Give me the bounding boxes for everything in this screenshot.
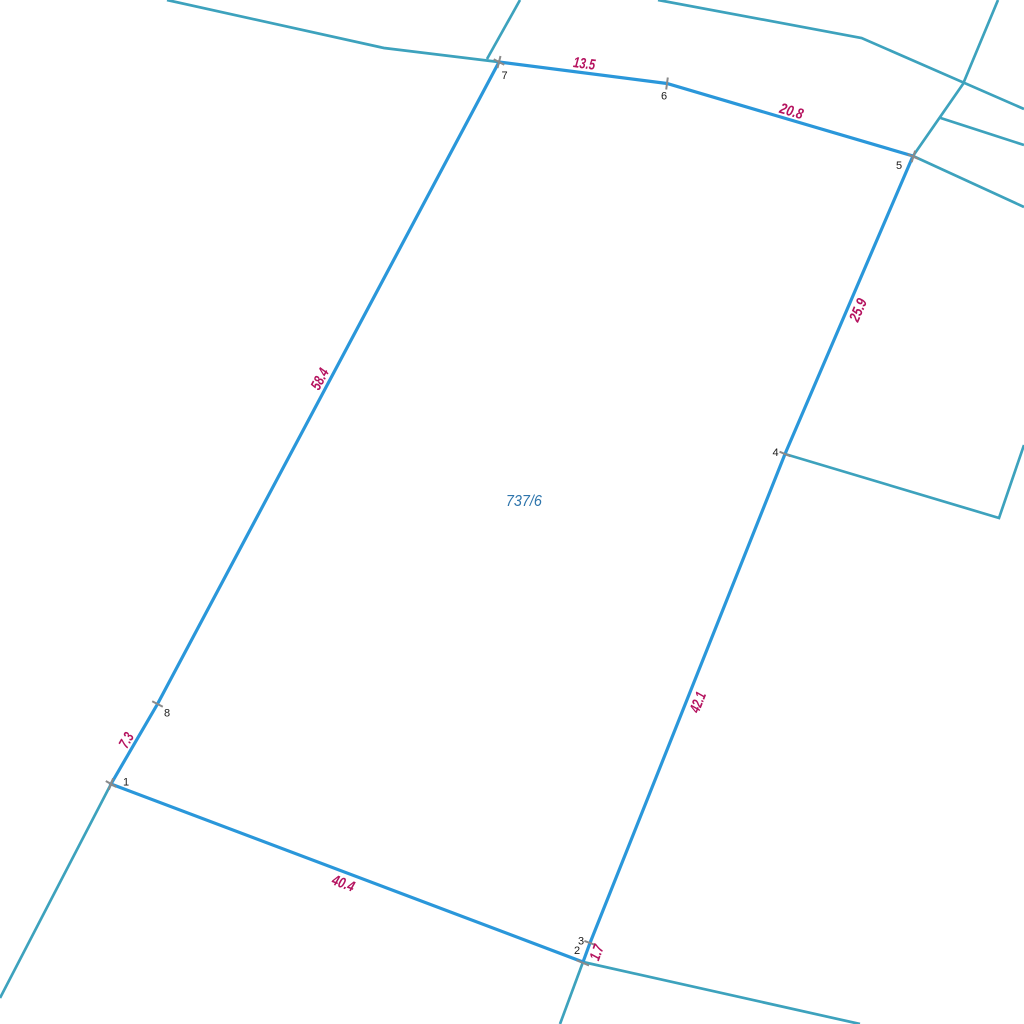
svg-text:7: 7 [502,70,508,82]
svg-text:4: 4 [773,447,779,459]
svg-text:13.5: 13.5 [572,54,596,74]
svg-text:737/6: 737/6 [506,493,542,510]
svg-text:5: 5 [896,160,902,172]
svg-text:8: 8 [164,708,170,720]
svg-text:2: 2 [574,945,580,957]
svg-text:6: 6 [661,90,667,102]
svg-text:1: 1 [123,777,129,789]
